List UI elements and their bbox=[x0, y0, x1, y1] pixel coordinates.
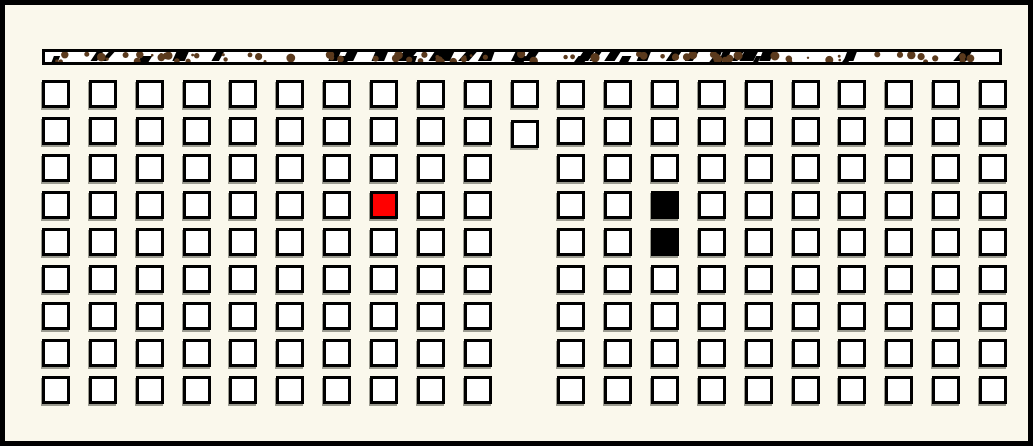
grid-cell[interactable] bbox=[136, 228, 164, 256]
grid-cell[interactable] bbox=[979, 339, 1007, 367]
grid-cell[interactable] bbox=[838, 228, 866, 256]
grid-cell[interactable] bbox=[42, 228, 70, 256]
grid-cell[interactable] bbox=[276, 265, 304, 293]
grid-cell[interactable] bbox=[89, 154, 117, 182]
grid-cell[interactable] bbox=[42, 80, 70, 108]
grid-cell[interactable] bbox=[745, 191, 773, 219]
grid-cell[interactable] bbox=[698, 80, 726, 108]
grid-cell[interactable] bbox=[183, 302, 211, 330]
grid-cell[interactable] bbox=[838, 154, 866, 182]
grid-cell[interactable] bbox=[651, 265, 679, 293]
grid-cell[interactable] bbox=[932, 228, 960, 256]
grid-cell[interactable] bbox=[885, 265, 913, 293]
grid-cell[interactable] bbox=[323, 265, 351, 293]
grid-cell[interactable] bbox=[370, 302, 398, 330]
grid-cell[interactable] bbox=[604, 265, 632, 293]
grid-cell[interactable] bbox=[792, 302, 820, 330]
grid-cell[interactable] bbox=[557, 376, 585, 404]
grid-cell[interactable] bbox=[698, 376, 726, 404]
grid-cell[interactable] bbox=[932, 302, 960, 330]
grid-cell[interactable] bbox=[979, 80, 1007, 108]
cell-grid bbox=[5, 5, 1028, 441]
grid-cell[interactable] bbox=[698, 191, 726, 219]
grid-cell[interactable] bbox=[698, 117, 726, 145]
grid-cell[interactable] bbox=[417, 191, 445, 219]
grid-cell[interactable] bbox=[651, 154, 679, 182]
grid-cell[interactable] bbox=[979, 265, 1007, 293]
grid-cell[interactable] bbox=[229, 154, 257, 182]
grid-cell[interactable] bbox=[42, 191, 70, 219]
grid-cell[interactable] bbox=[276, 117, 304, 145]
grid-cell[interactable] bbox=[370, 376, 398, 404]
grid-cell[interactable] bbox=[698, 265, 726, 293]
grid-cell[interactable] bbox=[651, 117, 679, 145]
grid-cell[interactable] bbox=[979, 228, 1007, 256]
grid-cell[interactable] bbox=[792, 265, 820, 293]
grid-cell[interactable] bbox=[885, 154, 913, 182]
grid-cell[interactable] bbox=[42, 265, 70, 293]
grid-cell[interactable] bbox=[838, 339, 866, 367]
grid-cell[interactable] bbox=[557, 228, 585, 256]
grid-cell[interactable] bbox=[183, 117, 211, 145]
grid-cell[interactable] bbox=[885, 191, 913, 219]
grid-cell[interactable] bbox=[557, 302, 585, 330]
grid-cell[interactable] bbox=[464, 191, 492, 219]
grid-cell[interactable] bbox=[745, 154, 773, 182]
grid-cell[interactable] bbox=[136, 117, 164, 145]
grid-cell[interactable] bbox=[932, 339, 960, 367]
grid-cell[interactable] bbox=[42, 376, 70, 404]
grid-cell[interactable] bbox=[604, 302, 632, 330]
grid-cell[interactable] bbox=[604, 376, 632, 404]
black-cell-lower[interactable] bbox=[651, 228, 679, 256]
grid-cell[interactable] bbox=[136, 191, 164, 219]
grid-cell[interactable] bbox=[229, 339, 257, 367]
grid-cell[interactable] bbox=[136, 302, 164, 330]
grid-cell[interactable] bbox=[651, 376, 679, 404]
grid-cell[interactable] bbox=[464, 302, 492, 330]
grid-cell[interactable] bbox=[745, 228, 773, 256]
grid-cell[interactable] bbox=[229, 191, 257, 219]
grid-cell[interactable] bbox=[932, 191, 960, 219]
grid-cell[interactable] bbox=[276, 302, 304, 330]
grid-cell[interactable] bbox=[557, 191, 585, 219]
grid-cell[interactable] bbox=[417, 339, 445, 367]
grid-cell[interactable] bbox=[932, 154, 960, 182]
grid-cell[interactable] bbox=[89, 339, 117, 367]
grid-cell[interactable] bbox=[417, 265, 445, 293]
grid-cell[interactable] bbox=[89, 80, 117, 108]
grid-cell[interactable] bbox=[838, 80, 866, 108]
grid-cell[interactable] bbox=[183, 191, 211, 219]
grid-cell[interactable] bbox=[979, 302, 1007, 330]
grid-cell[interactable] bbox=[604, 191, 632, 219]
grid-cell[interactable] bbox=[979, 117, 1007, 145]
grid-cell[interactable] bbox=[370, 228, 398, 256]
grid-cell[interactable] bbox=[792, 228, 820, 256]
grid-cell[interactable] bbox=[932, 376, 960, 404]
grid-cell[interactable] bbox=[557, 80, 585, 108]
grid-cell[interactable] bbox=[464, 80, 492, 108]
grid-cell[interactable] bbox=[370, 80, 398, 108]
grid-cell[interactable] bbox=[183, 154, 211, 182]
grid-cell[interactable] bbox=[136, 80, 164, 108]
simulation-panel bbox=[0, 0, 1033, 446]
grid-cell[interactable] bbox=[745, 339, 773, 367]
grid-cell[interactable] bbox=[698, 339, 726, 367]
grid-cell[interactable] bbox=[745, 302, 773, 330]
grid-cell[interactable] bbox=[651, 80, 679, 108]
grid-cell[interactable] bbox=[838, 265, 866, 293]
grid-cell[interactable] bbox=[323, 117, 351, 145]
grid-cell[interactable] bbox=[604, 117, 632, 145]
grid-cell[interactable] bbox=[979, 154, 1007, 182]
grid-cell[interactable] bbox=[932, 80, 960, 108]
grid-cell[interactable] bbox=[323, 302, 351, 330]
grid-cell[interactable] bbox=[838, 302, 866, 330]
grid-cell[interactable] bbox=[885, 376, 913, 404]
grid-cell[interactable] bbox=[745, 265, 773, 293]
grid-cell[interactable] bbox=[932, 117, 960, 145]
grid-cell[interactable] bbox=[792, 154, 820, 182]
grid-cell[interactable] bbox=[885, 302, 913, 330]
grid-cell[interactable] bbox=[370, 265, 398, 293]
grid-cell[interactable] bbox=[838, 191, 866, 219]
grid-cell[interactable] bbox=[229, 80, 257, 108]
grid-cell[interactable] bbox=[557, 339, 585, 367]
grid-cell[interactable] bbox=[464, 376, 492, 404]
grid-cell[interactable] bbox=[323, 376, 351, 404]
grid-cell[interactable] bbox=[698, 154, 726, 182]
grid-cell[interactable] bbox=[792, 339, 820, 367]
grid-cell[interactable] bbox=[136, 376, 164, 404]
grid-cell[interactable] bbox=[464, 154, 492, 182]
grid-cell[interactable] bbox=[370, 117, 398, 145]
grid-cell[interactable] bbox=[323, 228, 351, 256]
grid-cell[interactable] bbox=[276, 339, 304, 367]
grid-cell[interactable] bbox=[604, 228, 632, 256]
grid-cell[interactable] bbox=[932, 265, 960, 293]
grid-cell[interactable] bbox=[464, 117, 492, 145]
grid-cell[interactable] bbox=[276, 376, 304, 404]
grid-cell[interactable] bbox=[885, 117, 913, 145]
grid-cell[interactable] bbox=[745, 117, 773, 145]
black-cell-upper[interactable] bbox=[651, 191, 679, 219]
grid-cell[interactable] bbox=[136, 265, 164, 293]
grid-cell[interactable] bbox=[417, 117, 445, 145]
grid-cell[interactable] bbox=[979, 376, 1007, 404]
grid-cell[interactable] bbox=[511, 80, 539, 108]
grid-cell[interactable] bbox=[792, 80, 820, 108]
grid-cell[interactable] bbox=[417, 376, 445, 404]
grid-cell[interactable] bbox=[183, 80, 211, 108]
grid-cell[interactable] bbox=[651, 302, 679, 330]
grid-cell[interactable] bbox=[42, 117, 70, 145]
grid-cell[interactable] bbox=[417, 80, 445, 108]
grid-cell[interactable] bbox=[136, 154, 164, 182]
grid-cell[interactable] bbox=[557, 117, 585, 145]
grid-cell[interactable] bbox=[89, 302, 117, 330]
grid-cell[interactable] bbox=[838, 117, 866, 145]
grid-cell[interactable] bbox=[229, 265, 257, 293]
grid-cell[interactable] bbox=[370, 154, 398, 182]
grid-cell[interactable] bbox=[229, 302, 257, 330]
grid-cell[interactable] bbox=[229, 376, 257, 404]
grid-cell[interactable] bbox=[464, 228, 492, 256]
grid-cell[interactable] bbox=[229, 228, 257, 256]
grid-cell[interactable] bbox=[464, 265, 492, 293]
grid-cell[interactable] bbox=[323, 80, 351, 108]
grid-cell[interactable] bbox=[136, 339, 164, 367]
grid-cell[interactable] bbox=[276, 80, 304, 108]
grid-cell[interactable] bbox=[417, 228, 445, 256]
grid-cell[interactable] bbox=[557, 154, 585, 182]
grid-cell[interactable] bbox=[557, 265, 585, 293]
grid-cell[interactable] bbox=[89, 265, 117, 293]
grid-cell[interactable] bbox=[89, 228, 117, 256]
grid-cell[interactable] bbox=[183, 265, 211, 293]
grid-cell[interactable] bbox=[511, 120, 539, 148]
grid-cell[interactable] bbox=[604, 154, 632, 182]
grid-cell[interactable] bbox=[183, 228, 211, 256]
red-cell[interactable] bbox=[370, 191, 398, 219]
grid-cell[interactable] bbox=[370, 339, 398, 367]
grid-cell[interactable] bbox=[42, 302, 70, 330]
grid-cell[interactable] bbox=[323, 154, 351, 182]
grid-cell[interactable] bbox=[229, 117, 257, 145]
grid-cell[interactable] bbox=[651, 339, 679, 367]
grid-cell[interactable] bbox=[604, 80, 632, 108]
grid-cell[interactable] bbox=[885, 339, 913, 367]
grid-cell[interactable] bbox=[745, 376, 773, 404]
grid-cell[interactable] bbox=[276, 228, 304, 256]
grid-cell[interactable] bbox=[792, 191, 820, 219]
grid-cell[interactable] bbox=[276, 191, 304, 219]
grid-cell[interactable] bbox=[698, 302, 726, 330]
grid-cell[interactable] bbox=[42, 339, 70, 367]
grid-cell[interactable] bbox=[89, 191, 117, 219]
grid-cell[interactable] bbox=[745, 80, 773, 108]
grid-cell[interactable] bbox=[183, 376, 211, 404]
grid-cell[interactable] bbox=[792, 117, 820, 145]
grid-cell[interactable] bbox=[698, 228, 726, 256]
grid-cell[interactable] bbox=[183, 339, 211, 367]
grid-cell[interactable] bbox=[417, 154, 445, 182]
grid-cell[interactable] bbox=[323, 191, 351, 219]
grid-cell[interactable] bbox=[417, 302, 445, 330]
grid-cell[interactable] bbox=[89, 117, 117, 145]
grid-cell[interactable] bbox=[885, 228, 913, 256]
grid-cell[interactable] bbox=[323, 339, 351, 367]
grid-cell[interactable] bbox=[604, 339, 632, 367]
grid-cell[interactable] bbox=[276, 154, 304, 182]
grid-cell[interactable] bbox=[89, 376, 117, 404]
grid-cell[interactable] bbox=[464, 339, 492, 367]
grid-cell[interactable] bbox=[792, 376, 820, 404]
grid-cell[interactable] bbox=[885, 80, 913, 108]
grid-cell[interactable] bbox=[979, 191, 1007, 219]
grid-cell[interactable] bbox=[42, 154, 70, 182]
grid-cell[interactable] bbox=[838, 376, 866, 404]
